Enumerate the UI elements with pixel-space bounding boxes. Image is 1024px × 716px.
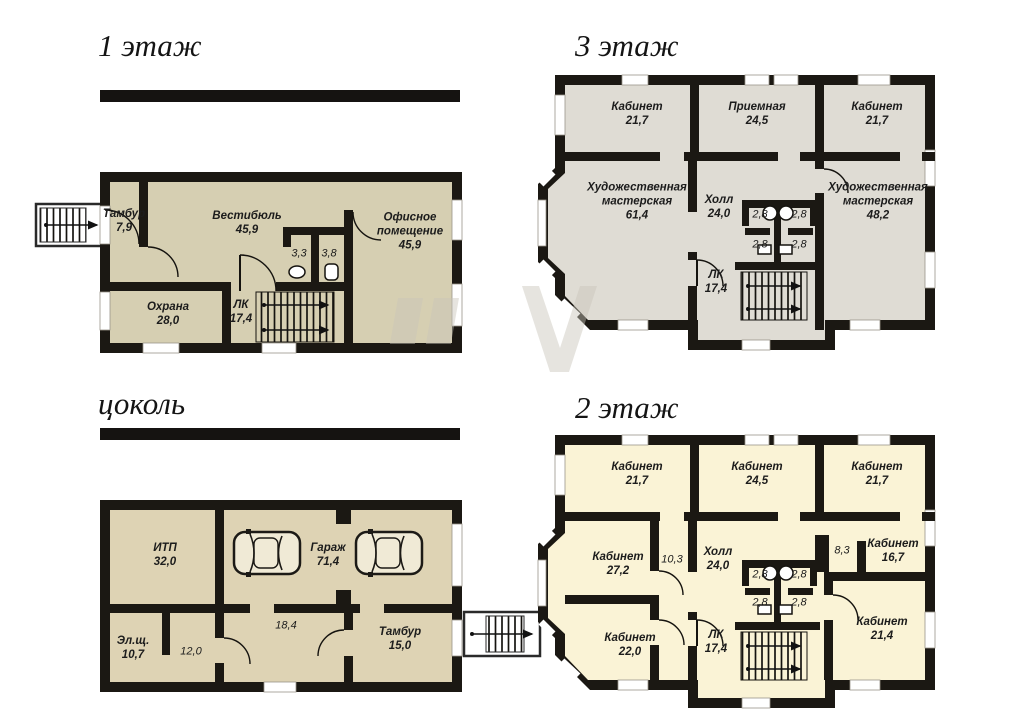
room-label-holl-f3: Холл24,0 [705,194,734,222]
room-label-itp: ИТП32,0 [153,542,177,570]
room-label-kabinet-16: Кабинет16,7 [867,538,918,566]
floor2-title: 2 этаж [575,390,679,426]
room-label-wc-f2: 2,8 [752,596,767,609]
room-label-lk-f1: ЛК17,4 [230,299,252,327]
room-label-kabinet3-f2: Кабинет21,7 [851,461,902,489]
room-label-tambur-f0: Тамбур15,0 [379,626,421,654]
room-label-wc-33: 3,3 [291,247,306,260]
floor3-stairs-icon [741,272,807,320]
room-label-tambur-f1: Тамбур7,9 [103,208,145,236]
floor1-title: 1 этаж [98,28,202,64]
room-label-kabinet1-f2: Кабинет21,7 [611,461,662,489]
room-label-kabinet2-f3: Кабинет21,7 [851,101,902,129]
room-label-wc-38: 3,8 [321,247,336,260]
room-label-corridor-12: 12,0 [180,645,201,658]
floor2-stairs-icon [741,632,807,680]
room-label-kabinet-22: Кабинет22,0 [604,632,655,660]
room-label-masterskaya-48: Художественная мастерская48,2 [813,181,943,222]
divider-bar [100,428,460,440]
room-label-kabinet1-f3: Кабинет21,7 [611,101,662,129]
room-label-wc-f2: 2,8 [752,568,767,581]
room-label-wc-f3: 2,8 [791,208,806,221]
floor1-stairs-icon [256,292,334,342]
room-label-lk-f2: ЛК17,4 [705,629,727,657]
room-label-elsh: Эл.щ.10,7 [117,635,150,663]
floor3-title: 3 этаж [575,28,679,64]
room-label-wc-f3: 2,8 [791,238,806,251]
entrance-stairs-icon [36,204,104,246]
room-label-holl-f2: Холл24,0 [704,546,733,574]
room-label-ohrana: Охрана28,0 [147,301,189,329]
basement-exterior-stairs-icon [464,612,540,656]
room-label-wc-f3: 2,8 [752,208,767,221]
room-label-corridor-8: 8,3 [834,544,849,557]
car-icon [234,529,300,577]
room-label-kabinet-21: Кабинет21,4 [856,616,907,644]
floor-plans-page: 1 этаж 3 этаж цоколь 2 этаж Тамбур7,9 Ве… [0,0,1024,716]
room-label-lk-f3: ЛК17,4 [705,269,727,297]
room-label-priemnaya: Приемная24,5 [728,101,785,129]
basement-plan [100,500,540,692]
room-label-wc-f2: 2,8 [791,596,806,609]
room-label-office: Офисное помещение45,9 [360,211,460,252]
room-label-garage: Гараж71,4 [310,542,345,570]
room-label-vestibul: Вестибюль45,9 [212,210,281,238]
room-label-kabinet-27: Кабинет27,2 [592,551,643,579]
room-label-corridor-10: 10,3 [661,553,682,566]
basement-title: цоколь [98,386,185,422]
room-label-corridor-18: 18,4 [275,619,296,632]
room-label-wc-f2: 2,8 [791,568,806,581]
divider-bar [100,90,460,102]
room-label-kabinet2-f2: Кабинет24,5 [731,461,782,489]
car-icon [356,529,422,577]
room-label-wc-f3: 2,8 [752,238,767,251]
room-label-masterskaya-61: Художественная мастерская61,4 [572,181,702,222]
